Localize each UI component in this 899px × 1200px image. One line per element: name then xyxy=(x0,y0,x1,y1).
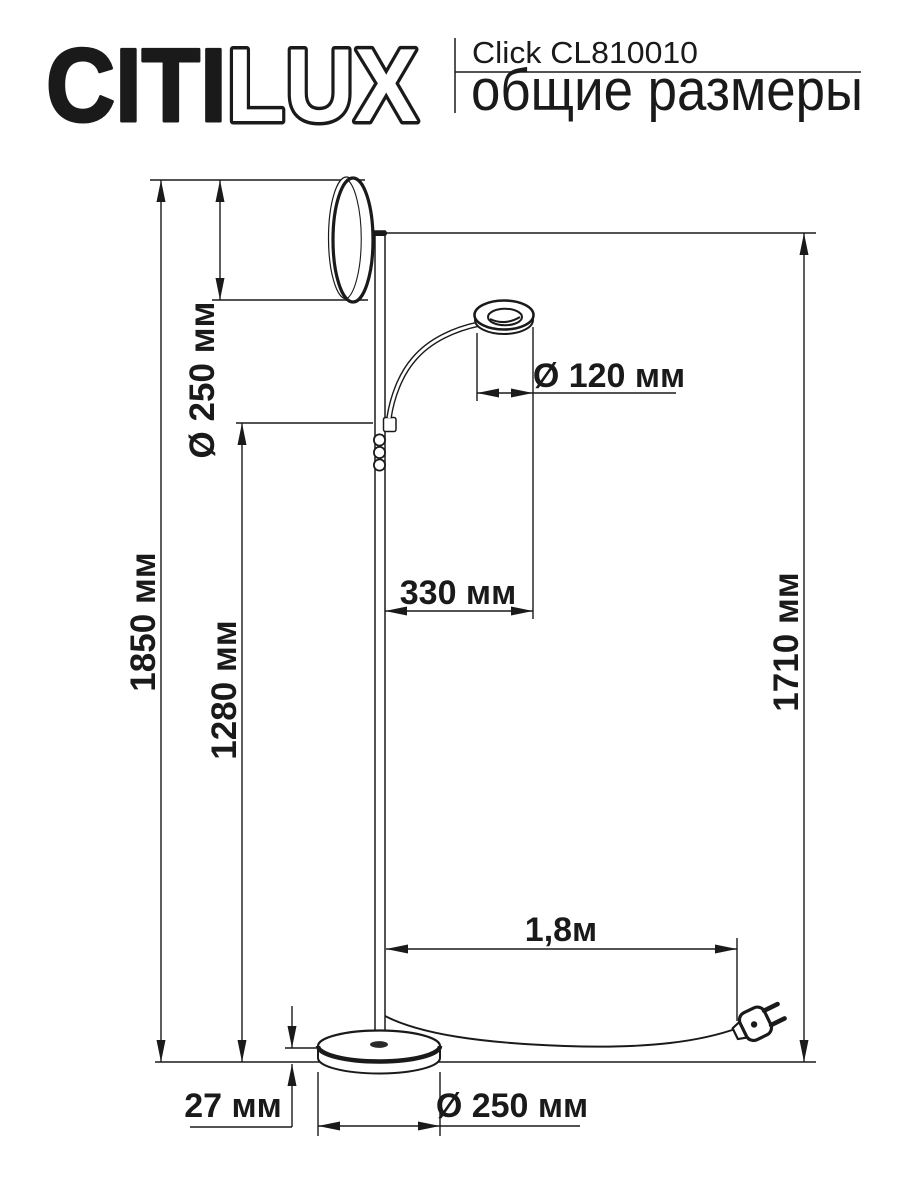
pole-height-label: 1710 мм xyxy=(767,572,806,711)
cable-length-label: 1,8м xyxy=(525,911,597,949)
arm-reach-label: 330 мм xyxy=(400,574,516,612)
lamp-pole xyxy=(375,231,385,1046)
gooseneck-arm xyxy=(389,324,479,418)
main-lamp-head xyxy=(329,177,374,302)
gooseneck-mount xyxy=(384,418,397,432)
total-height-label: 1850 мм xyxy=(124,552,163,691)
logo-lux: LUX xyxy=(227,28,418,144)
base-height-label: 27 мм xyxy=(184,1087,282,1125)
base-diameter-label: Ø 250 мм xyxy=(436,1087,588,1125)
lamp-base xyxy=(318,1031,440,1074)
arm-height-label: 1280 мм xyxy=(205,620,244,759)
drawing-subtitle: общие размеры xyxy=(471,58,863,123)
floor-lamp-drawing xyxy=(318,177,534,1074)
logo-citi: CITI xyxy=(46,28,227,144)
header: CITILUX Click CL810010 общие размеры xyxy=(46,28,863,144)
pole-foot xyxy=(370,1041,388,1048)
control-buttons xyxy=(374,434,385,470)
citilux-logo: CITILUX xyxy=(46,28,418,144)
lamp-dimension-drawing: CITILUX Click CL810010 общие размеры xyxy=(0,0,899,1200)
page: { "header": { "brand": { "citi": "CITI",… xyxy=(0,0,899,1200)
reading-head-diameter-label: Ø 120 мм xyxy=(533,357,685,395)
reading-lamp-head xyxy=(475,301,534,335)
head-diameter-label: Ø 250 мм xyxy=(183,302,222,459)
